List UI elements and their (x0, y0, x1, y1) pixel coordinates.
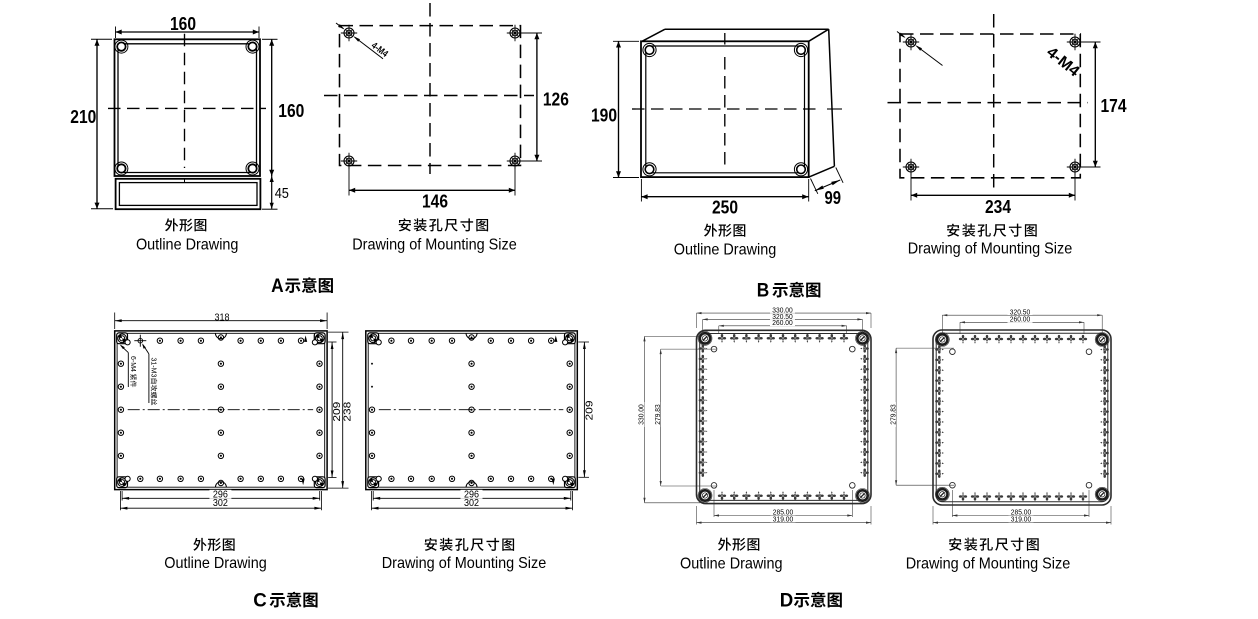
svg-text:45: 45 (275, 185, 289, 202)
svg-text:238: 238 (342, 402, 354, 422)
svg-text:4-M4: 4-M4 (369, 40, 390, 60)
svg-text:126: 126 (543, 88, 569, 109)
svg-text:302: 302 (213, 498, 228, 509)
svg-text:Drawing of Mounting Size: Drawing of Mounting Size (906, 556, 1071, 573)
svg-text:Drawing of Mounting Size: Drawing of Mounting Size (382, 555, 547, 572)
svg-text:160: 160 (170, 13, 196, 34)
svg-text:279.83: 279.83 (655, 404, 662, 425)
svg-text:210: 210 (70, 106, 96, 127)
svg-text:Outline Drawing: Outline Drawing (680, 556, 783, 573)
svg-text:31-M3: 31-M3 (149, 358, 156, 378)
svg-text:146: 146 (422, 190, 448, 211)
svg-text:4-M4: 4-M4 (1043, 44, 1083, 81)
svg-text:Outline Drawing: Outline Drawing (164, 555, 267, 572)
svg-text:160: 160 (278, 100, 304, 121)
svg-text:174: 174 (1101, 95, 1128, 116)
svg-text:319.00: 319.00 (1011, 517, 1032, 524)
svg-text:Outline Drawing: Outline Drawing (674, 241, 777, 258)
svg-text:250: 250 (712, 196, 738, 217)
svg-text:330.00: 330.00 (639, 404, 646, 425)
svg-text:Drawing of Mounting Size: Drawing of Mounting Size (352, 236, 517, 253)
svg-text:234: 234 (985, 196, 1012, 217)
svg-text:302: 302 (464, 498, 479, 509)
svg-text:260.00: 260.00 (1010, 317, 1031, 324)
svg-text:C: C (253, 591, 267, 612)
svg-text:A: A (271, 276, 284, 297)
svg-text:320.50: 320.50 (1010, 309, 1031, 316)
svg-text:318: 318 (215, 312, 230, 323)
svg-text:Drawing of Mounting Size: Drawing of Mounting Size (908, 240, 1073, 257)
svg-text:285.00: 285.00 (773, 510, 794, 517)
svg-text:6-M4: 6-M4 (129, 356, 136, 372)
svg-text:D: D (780, 591, 794, 612)
svg-text:285.00: 285.00 (1011, 510, 1032, 517)
svg-text:319.00: 319.00 (773, 517, 794, 524)
svg-text:99: 99 (825, 187, 842, 208)
svg-text:B: B (757, 281, 770, 302)
svg-text:209: 209 (583, 400, 595, 420)
svg-text:260.00: 260.00 (772, 320, 793, 327)
svg-text:190: 190 (591, 105, 617, 126)
svg-text:279.83: 279.83 (890, 404, 897, 425)
svg-text:Outline Drawing: Outline Drawing (136, 236, 239, 253)
